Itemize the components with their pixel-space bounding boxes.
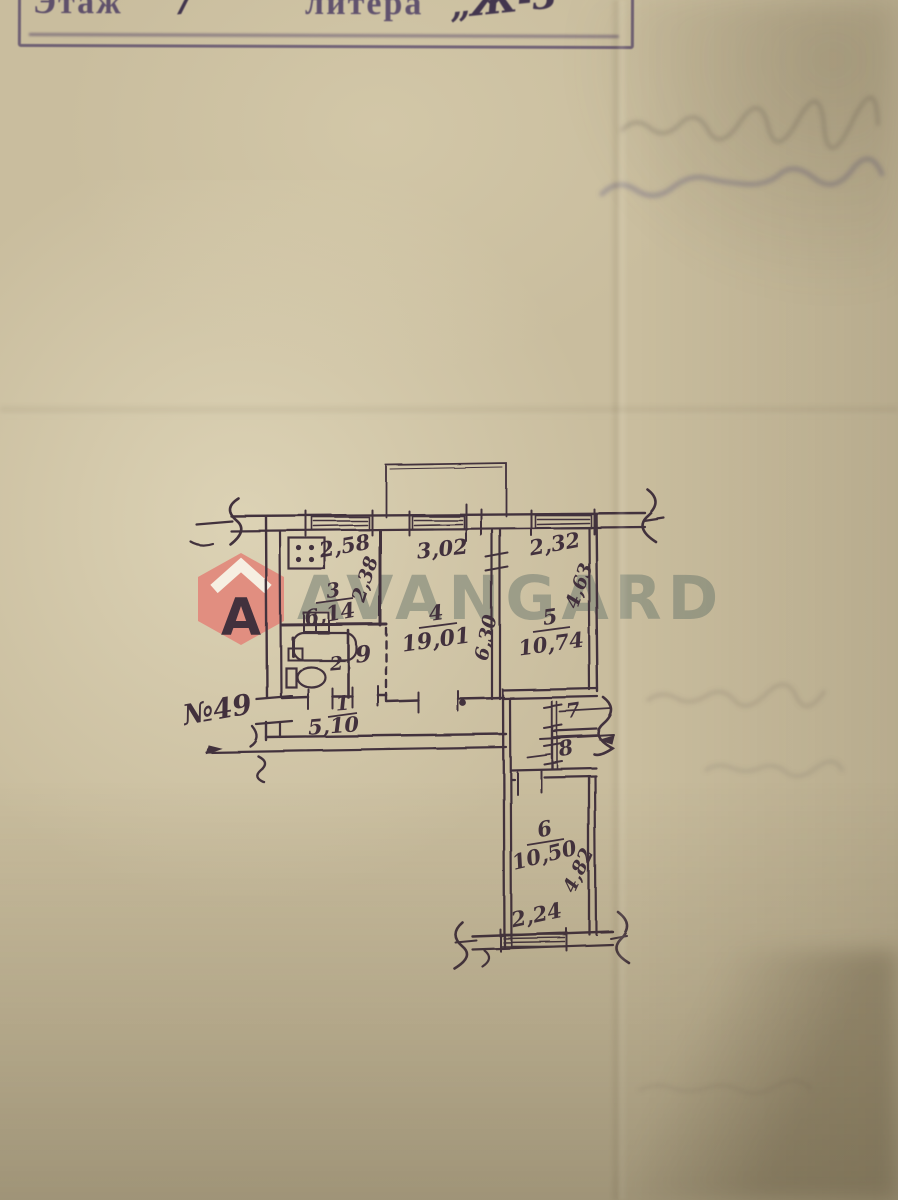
wall-break-mark xyxy=(594,698,612,754)
room-6-number: 6 xyxy=(535,815,555,843)
balcony xyxy=(386,463,506,517)
door-tick xyxy=(517,770,541,794)
room4-width-dimension: 3,02 xyxy=(415,533,468,563)
room4-room5-wall xyxy=(486,529,508,699)
balcony-door-mark xyxy=(466,504,481,541)
room6-width-dimension: 2,24 xyxy=(508,897,564,932)
room5-depth-dimension: 4,63 xyxy=(561,560,598,611)
room-7-number: 7 xyxy=(564,697,581,723)
wall-break-mark xyxy=(257,756,265,782)
door-tick xyxy=(418,691,458,712)
room-9-number: 9 xyxy=(354,640,372,668)
window xyxy=(312,515,591,530)
wall-break-mark xyxy=(250,726,257,746)
photographed-floor-plan-document: Этаж 7 литера „Ж-3 A AVANGARD xyxy=(0,0,898,1200)
room-5-number: 5 xyxy=(541,603,559,630)
wall-break-mark xyxy=(643,490,656,542)
room5-width-dimension: 2,32 xyxy=(526,527,582,561)
apartment-number-label: №49 xyxy=(179,687,254,732)
right-exterior-wall xyxy=(589,514,598,692)
left-exterior-wall xyxy=(256,517,292,740)
floor-plan-drawing: 2,58 3,02 2,32 3 6,14 2,38 4 19,01 6,30 … xyxy=(0,0,898,1200)
wall-break-mark xyxy=(454,922,467,968)
room-4-area: 19,01 xyxy=(400,622,472,657)
top-exterior-wall xyxy=(190,490,664,545)
room-5-area: 10,74 xyxy=(517,627,586,661)
kitchen-depth-dimension: 2,38 xyxy=(347,554,383,606)
wall-break-mark xyxy=(482,950,489,966)
room4-depth-dimension: 6,30 xyxy=(471,613,502,663)
room-2-number: 2 xyxy=(328,652,344,675)
bleed-through-text xyxy=(602,97,882,1093)
room6-walls xyxy=(454,776,628,968)
room-4-number: 4 xyxy=(427,599,445,626)
toilet-icon xyxy=(286,667,325,687)
entrance-door-mark xyxy=(256,696,292,724)
plan-labels: 2,58 3,02 2,32 3 6,14 2,38 4 19,01 6,30 … xyxy=(179,527,598,933)
room-1-area: 5,10 xyxy=(307,711,360,740)
wall-tick xyxy=(486,553,508,571)
